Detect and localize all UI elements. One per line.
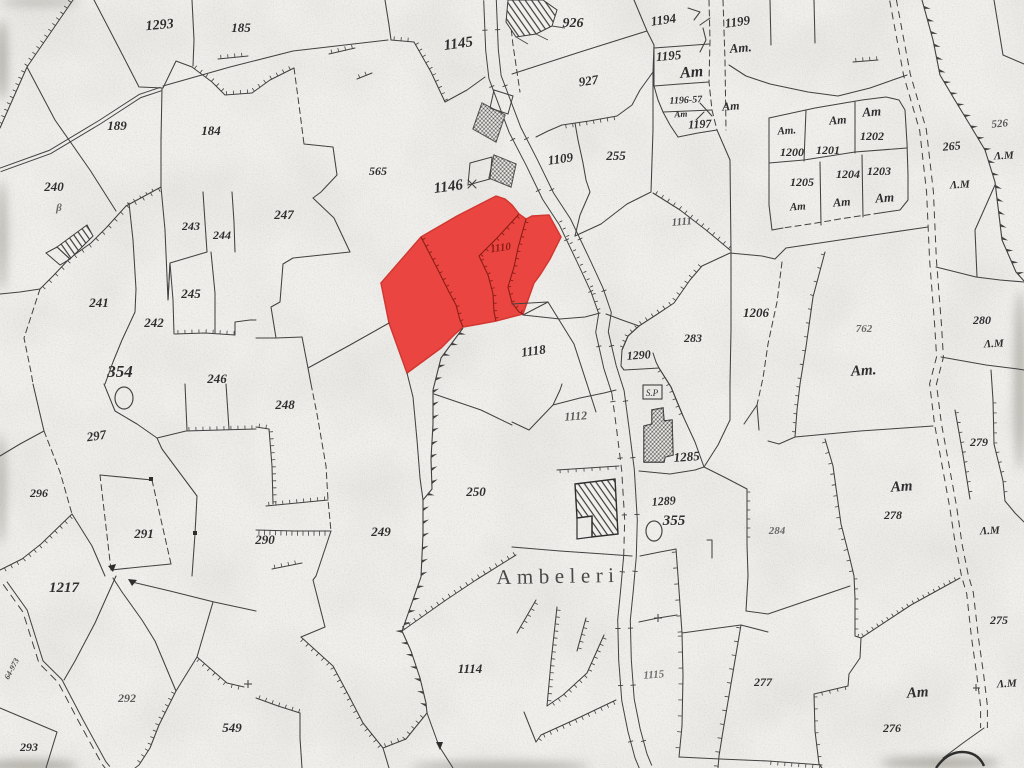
svg-text:565: 565 xyxy=(369,164,387,178)
svg-text:250: 250 xyxy=(465,484,486,499)
svg-text:Am.: Am. xyxy=(776,124,796,137)
svg-text:248: 248 xyxy=(274,397,295,412)
svg-text:Am.: Am. xyxy=(728,39,752,56)
svg-text:355: 355 xyxy=(662,513,686,529)
svg-text:276: 276 xyxy=(882,721,901,735)
svg-text:265: 265 xyxy=(941,138,961,154)
svg-text:Ambeleri: Ambeleri xyxy=(496,563,620,589)
svg-text:277: 277 xyxy=(753,675,773,689)
svg-text:284: 284 xyxy=(768,525,786,537)
svg-text:Λ.М: Λ.М xyxy=(996,677,1019,690)
svg-text:1201: 1201 xyxy=(816,143,840,157)
svg-text:762: 762 xyxy=(856,323,873,335)
svg-text:1206: 1206 xyxy=(743,305,770,320)
svg-text:S.P: S.P xyxy=(646,388,659,398)
svg-text:Λ.М: Λ.М xyxy=(993,149,1016,162)
svg-text:291: 291 xyxy=(133,526,154,541)
svg-text:189: 189 xyxy=(107,118,127,133)
svg-text:1111: 1111 xyxy=(671,215,692,229)
svg-text:549: 549 xyxy=(222,720,242,735)
svg-text:Λ.М: Λ.М xyxy=(979,524,1002,537)
svg-text:242: 242 xyxy=(143,315,164,330)
svg-text:β: β xyxy=(55,202,62,214)
svg-text:1217: 1217 xyxy=(49,580,80,596)
svg-text:1285: 1285 xyxy=(673,448,700,465)
svg-text:1204: 1204 xyxy=(836,167,860,181)
svg-text:292: 292 xyxy=(117,691,136,705)
svg-text:278: 278 xyxy=(883,508,902,522)
svg-text:275: 275 xyxy=(989,613,1008,627)
svg-text:1289: 1289 xyxy=(651,493,676,509)
svg-text:245: 245 xyxy=(180,286,201,301)
svg-text:Am: Am xyxy=(905,684,929,702)
svg-text:1196-57: 1196-57 xyxy=(669,94,703,107)
svg-text:185: 185 xyxy=(231,20,251,35)
svg-text:247: 247 xyxy=(273,207,294,222)
svg-text:1203: 1203 xyxy=(867,164,891,178)
svg-text:280: 280 xyxy=(972,313,991,327)
svg-text:1200: 1200 xyxy=(780,145,804,159)
svg-text:927: 927 xyxy=(578,72,600,90)
svg-text:1290: 1290 xyxy=(626,347,651,363)
svg-text:243: 243 xyxy=(181,219,200,233)
svg-text:1202: 1202 xyxy=(860,129,884,143)
svg-text:296: 296 xyxy=(29,486,48,500)
svg-text:1114: 1114 xyxy=(458,661,483,676)
svg-text:1112: 1112 xyxy=(564,408,588,424)
svg-text:Λ.М: Λ.М xyxy=(983,337,1006,350)
svg-text:526: 526 xyxy=(991,117,1009,130)
svg-text:Am: Am xyxy=(874,189,895,205)
svg-text:926: 926 xyxy=(563,16,584,31)
svg-text:1293: 1293 xyxy=(145,17,174,34)
svg-text:1115: 1115 xyxy=(643,668,665,681)
svg-text:184: 184 xyxy=(201,123,221,138)
svg-text:Am: Am xyxy=(673,109,688,120)
svg-text:255: 255 xyxy=(605,148,626,163)
svg-text:1197: 1197 xyxy=(688,116,713,131)
svg-text:Am: Am xyxy=(678,63,704,82)
svg-text:1195: 1195 xyxy=(655,47,682,64)
svg-text:Am: Am xyxy=(788,200,806,213)
svg-text:290: 290 xyxy=(254,532,275,547)
svg-text:293: 293 xyxy=(19,740,38,754)
svg-text:249: 249 xyxy=(370,524,391,539)
svg-text:Am: Am xyxy=(828,112,847,127)
svg-text:240: 240 xyxy=(43,179,64,194)
svg-text:Am: Am xyxy=(721,98,740,113)
svg-text:Am: Am xyxy=(889,478,913,496)
svg-text:297: 297 xyxy=(85,427,108,445)
svg-text:Am: Am xyxy=(861,103,882,119)
svg-text:354: 354 xyxy=(106,362,133,381)
svg-text:Am: Am xyxy=(832,194,851,209)
svg-text:Am.: Am. xyxy=(849,362,876,380)
svg-text:283: 283 xyxy=(683,331,702,345)
svg-text:1205: 1205 xyxy=(790,175,814,189)
svg-text:Λ.М: Λ.М xyxy=(949,178,972,191)
svg-text:241: 241 xyxy=(88,295,109,310)
svg-text:244: 244 xyxy=(212,228,231,242)
svg-text:279: 279 xyxy=(969,435,988,449)
svg-text:246: 246 xyxy=(206,371,227,386)
